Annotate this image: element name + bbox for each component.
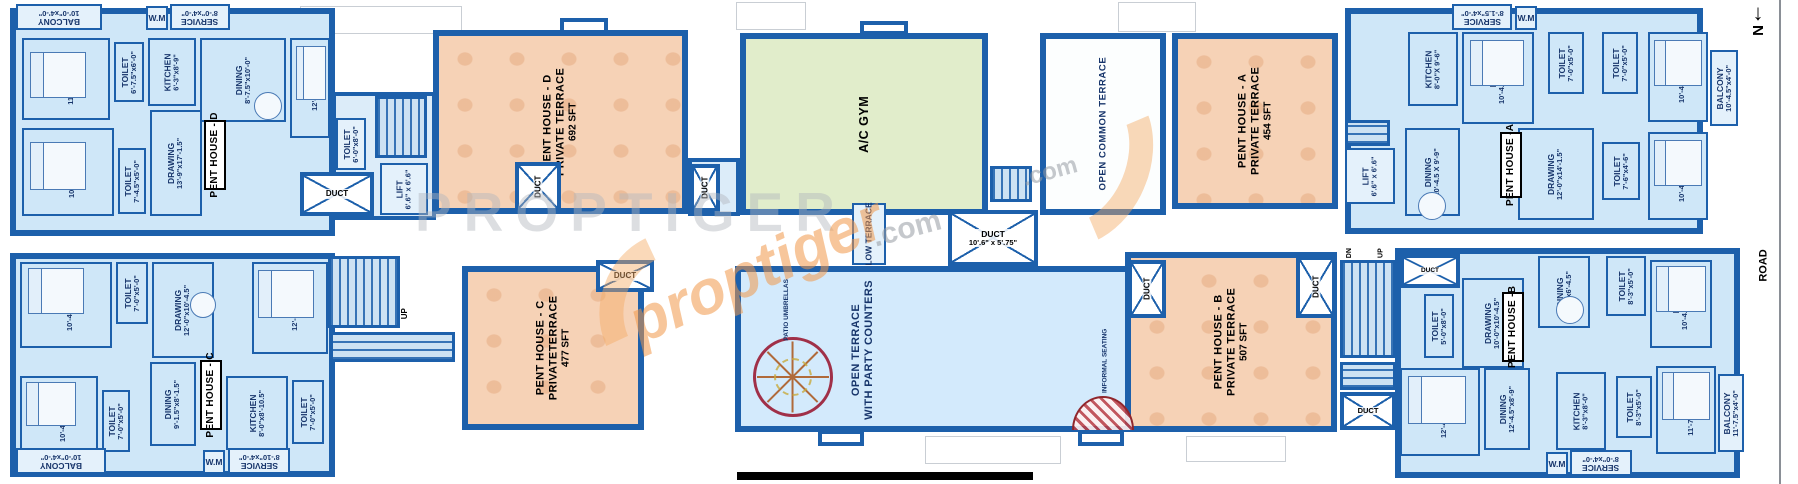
projection-outline [736,2,806,30]
bed-icon [26,382,76,426]
lift-a: LIFT6'.6" x 6'.6" [1345,148,1395,204]
unitB-toilet-2: TOILET8'-3"x5'-0" [1606,256,1646,316]
unitC-toilet-1: TOILET7'-0"x5'-0" [116,262,148,324]
unitB-kitchen: KITCHEN8'-3"x8'-0" [1556,372,1606,450]
room-dims: 6'-3"x8'-9" [173,53,182,91]
room-dims: 7'-4.5"x5'-0" [133,160,142,203]
room-label: BALCONY [38,16,80,26]
duct-central: DUCT10'.6" x 5'.75" [948,210,1038,266]
unitD-kitchen: KITCHEN6'-3"x8'-9" [148,38,196,106]
low-terrace: LOW TERRACE [852,203,886,265]
terrace-d-duct-1: DUCT [515,162,561,212]
bed-icon [1654,40,1702,86]
unitA-toilet-2: TOILET7'-0"x5'-0" [1602,32,1638,94]
patio-umbrella-icon [753,337,833,417]
staircase-gym-side [990,166,1032,202]
unitC-service: SERVICE8'-10"x4'-0" [228,448,290,474]
room-dims: 8'-7.5"x10'-0" [244,57,253,104]
corridor-b [1340,362,1396,390]
unitA-wm: W.M [1515,6,1537,30]
lift-dims: 6'.6" x 6'.6" [405,169,414,209]
dining-table-icon [190,292,216,318]
unitA-service: SERVICE8'-1.5"x4'-0" [1452,4,1512,30]
unitB-service: SERVICE8'-0"x4'-0" [1570,450,1632,476]
unitA-drawing: DRAWING12'-0"x14'-1.5" [1518,128,1594,220]
projection-outline [1118,2,1196,32]
unitA-balcony: BALCONY10'-4.5"x4'-0" [1710,50,1738,126]
bed-icon [296,46,326,100]
terrace-penthouse-a: PENT HOUSE - APRIVATE TERRACE454 SFT [1172,33,1338,209]
terrace-b-duct-2: DUCT [1296,256,1336,318]
room-label: W.M [149,13,166,23]
stairs-duct-b: DUCT [1340,392,1396,430]
staircase-d [375,96,427,158]
terrace-c-duct: DUCT [596,260,654,292]
open-terrace-tab [1078,430,1124,446]
unitB-name-tag: PENT HOUSE -B [1502,292,1524,362]
bed-icon [30,52,86,98]
unitB-dining-2: DINING12'-4.5"x8'-9" [1484,368,1530,450]
staircase-c [328,256,400,328]
room-dims: 6'-0"x8'-0" [352,126,361,163]
stairs-dn-label: DN [1342,242,1358,264]
room-label: SERVICE [181,16,218,26]
room-dims: 6'-7.5"x6'-0" [130,51,139,94]
lift-d: LIFT6'.6" x 6'.6" [380,163,428,215]
north-compass: ↓N [1738,4,1778,44]
compass-arrow-icon: ↓ [1753,4,1764,22]
floor-plan-canvas: BALCONY10'-0"x4'-0" W.M SERVICE8'-0"x4'-… [0,0,1798,484]
unitC-toilet-2: TOILET7'-0"x5'-0" [102,390,130,452]
unitD-service: SERVICE8'-0"x4'-0" [170,4,230,30]
stairs-up-label: UP [396,296,414,332]
unitD-name-tag: PENT HOUSE - D [204,120,226,190]
unitD-toilet-1: TOILET6'-7.5"x6'-0" [114,42,144,102]
open-terrace-tab [818,430,864,446]
bed-icon [30,142,86,190]
terrace-d-top-tab [560,18,608,34]
ac-gym: A/C GYM [740,33,988,215]
projection-outline [1186,436,1286,462]
corridor-c [330,332,455,362]
open-common-terrace: OPEN COMMON TERRACE [1040,33,1166,215]
unitD-toilet-3: TOILET6'-0"x8'-0" [336,118,366,170]
scale-bar [737,472,1033,480]
gym-top-tab [860,21,908,35]
bed-icon [258,270,314,318]
bed-icon [1408,376,1466,424]
terrace-b-duct-1: DUCT [1128,260,1166,318]
unitA-toilet-3: TOILET7'-6"x4'-6" [1602,142,1640,200]
unitB-wm: W.M [1546,452,1568,476]
dining-table-icon [254,92,282,120]
bed-icon [1662,372,1710,420]
patio-umbrellas-label: PATIO UMBRELLAS [778,275,796,345]
unitA-name-tag: PENT HOUSE -A [1500,132,1522,198]
unitB-balcony: BALCONY11'-7.5"x4'-0" [1718,374,1744,452]
unitD-wm: W.M [146,6,168,30]
unitC-dining: DINING9'-1.5"x8'-1.5" [150,362,196,446]
bed-icon [28,268,84,314]
unitC-balcony: BALCONY10'-0"x4'-0" [16,448,106,474]
corridor-a [1345,120,1390,146]
bed-icon [1654,140,1702,186]
terrace-d-duct-2: DUCT [690,164,720,212]
unitC-name-tag: PENT HOUSE - C [200,360,222,430]
unitA-kitchen: KITCHEN8'-0"X 9'-6" [1408,32,1458,106]
unitD-drawing: DRAWING13'-9"x17'-1.5" [150,110,202,216]
unitB-duct: DUCT [1400,254,1460,288]
unitB-toilet-1: TOILET5'-0"x8'-0" [1424,294,1454,358]
bed-icon [1656,266,1706,312]
staircase-b [1340,260,1396,358]
projection-outline [925,436,1061,464]
road-line [1779,0,1781,484]
room-dims: 13'-9"x17'-1.5" [177,137,186,188]
dining-table-icon [1556,296,1584,324]
unitD-toilet-2: TOILET7'-4.5"x5'-0" [118,148,146,214]
unitD-duct: DUCT [300,172,374,216]
open-terrace-label: OPEN TERRACEWITH PARTY COUNTERS [828,280,898,420]
unitB-toilet-3: TOILET8'-3"x5'-0" [1616,376,1652,438]
unitC-toilet-3: TOILET7'-0"x5'-0" [292,380,324,444]
room-dims: 8'-0"x4'-0" [181,8,218,17]
stairs-up-label-2: UP [1374,242,1390,264]
unitC-wm: W.M [203,450,225,474]
unitA-toilet-1: TOILET7'-0"x5'-0" [1548,32,1584,94]
unitC-kitchen: KITCHEN8'-0"x8'-10.5" [226,376,288,450]
road-label: ROAD [1752,235,1776,295]
informal-seating-label: INFORMAL SEATING [1096,322,1114,400]
unitD-balcony: BALCONY10'-0"x4'-0" [16,4,102,30]
bed-icon [1470,40,1524,86]
room-dims: 10'-0"x4'-0" [38,8,80,17]
dining-table-icon [1418,192,1446,220]
